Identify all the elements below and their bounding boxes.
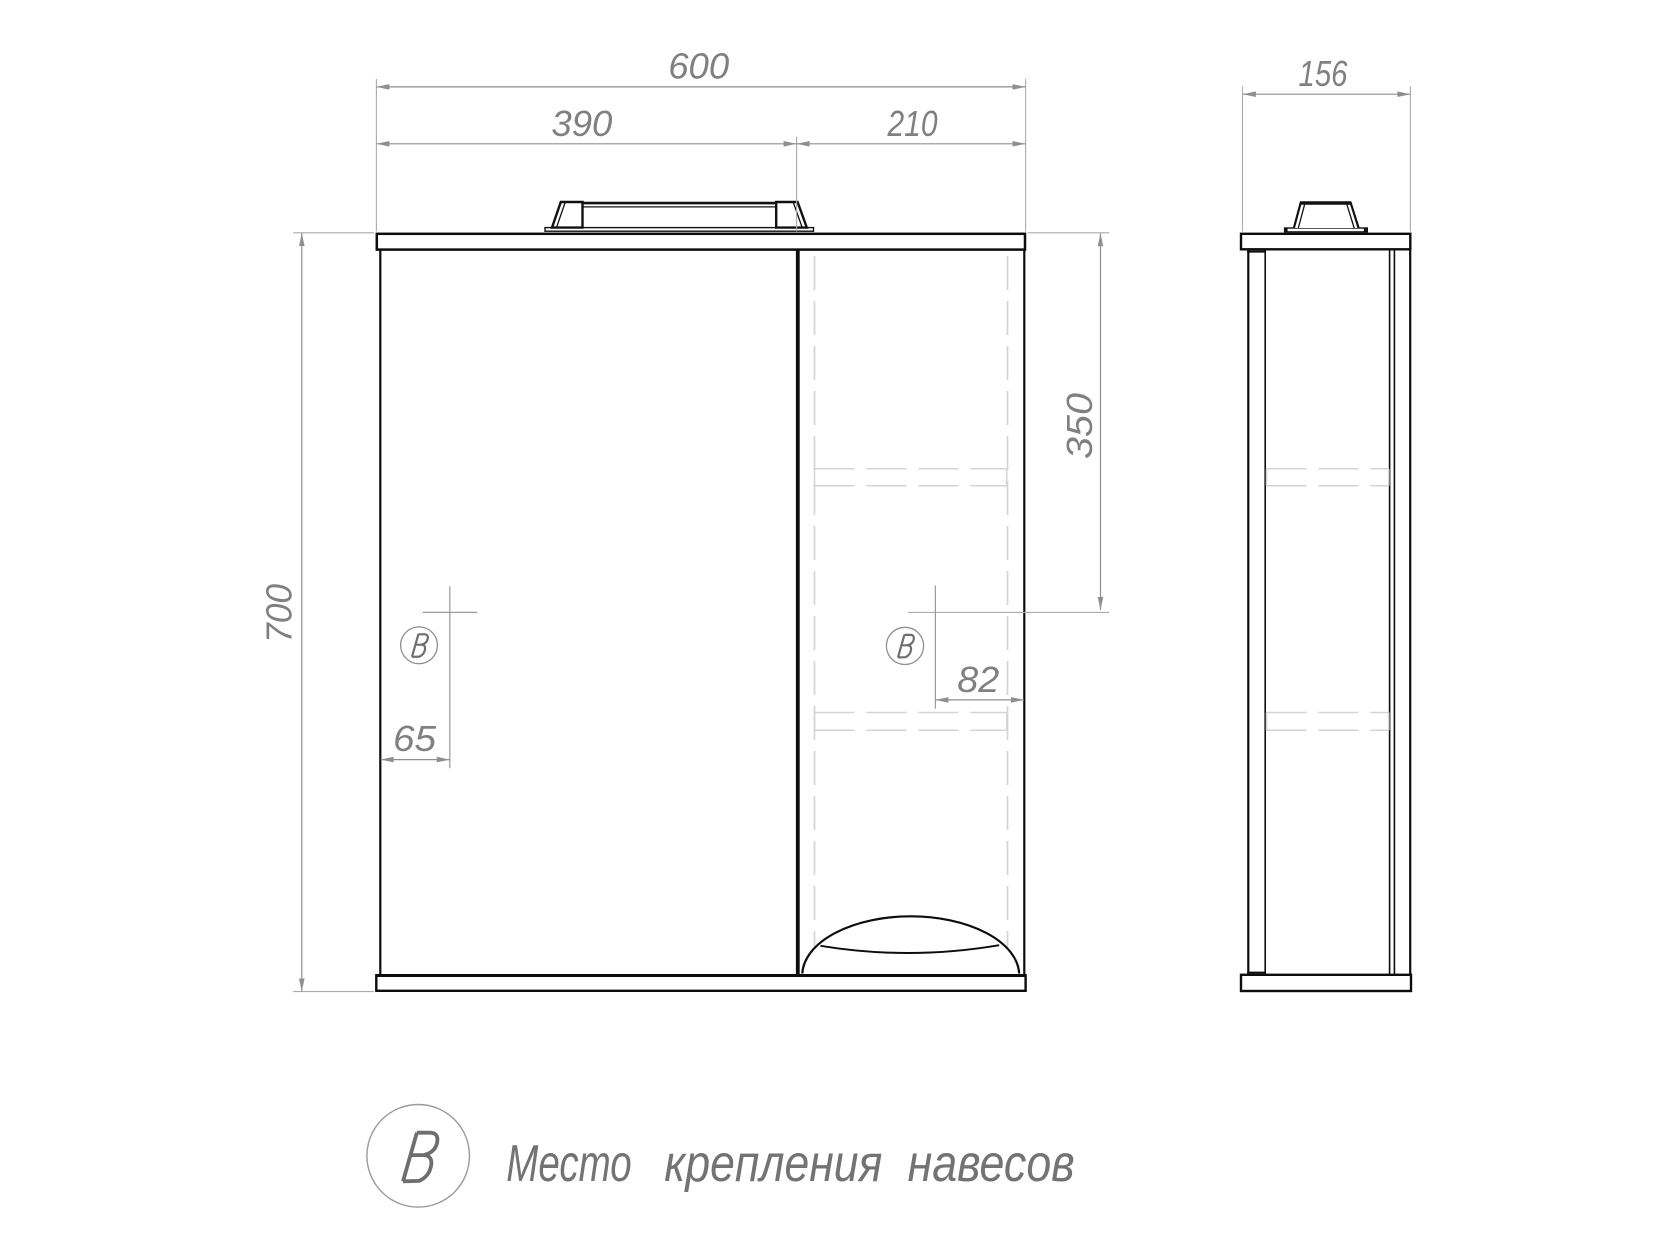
svg-text:600: 600: [668, 46, 729, 87]
svg-text:390: 390: [551, 103, 612, 144]
svg-text:156: 156: [1299, 53, 1349, 94]
svg-text:700: 700: [259, 584, 300, 643]
svg-text:82: 82: [957, 659, 999, 700]
svg-text:350: 350: [1059, 393, 1100, 459]
svg-text:65: 65: [393, 718, 437, 759]
svg-text:210: 210: [887, 103, 938, 144]
svg-text:навесов: навесов: [908, 1135, 1075, 1193]
svg-text:Место: Место: [506, 1135, 631, 1193]
svg-text:крепления: крепления: [664, 1135, 882, 1193]
